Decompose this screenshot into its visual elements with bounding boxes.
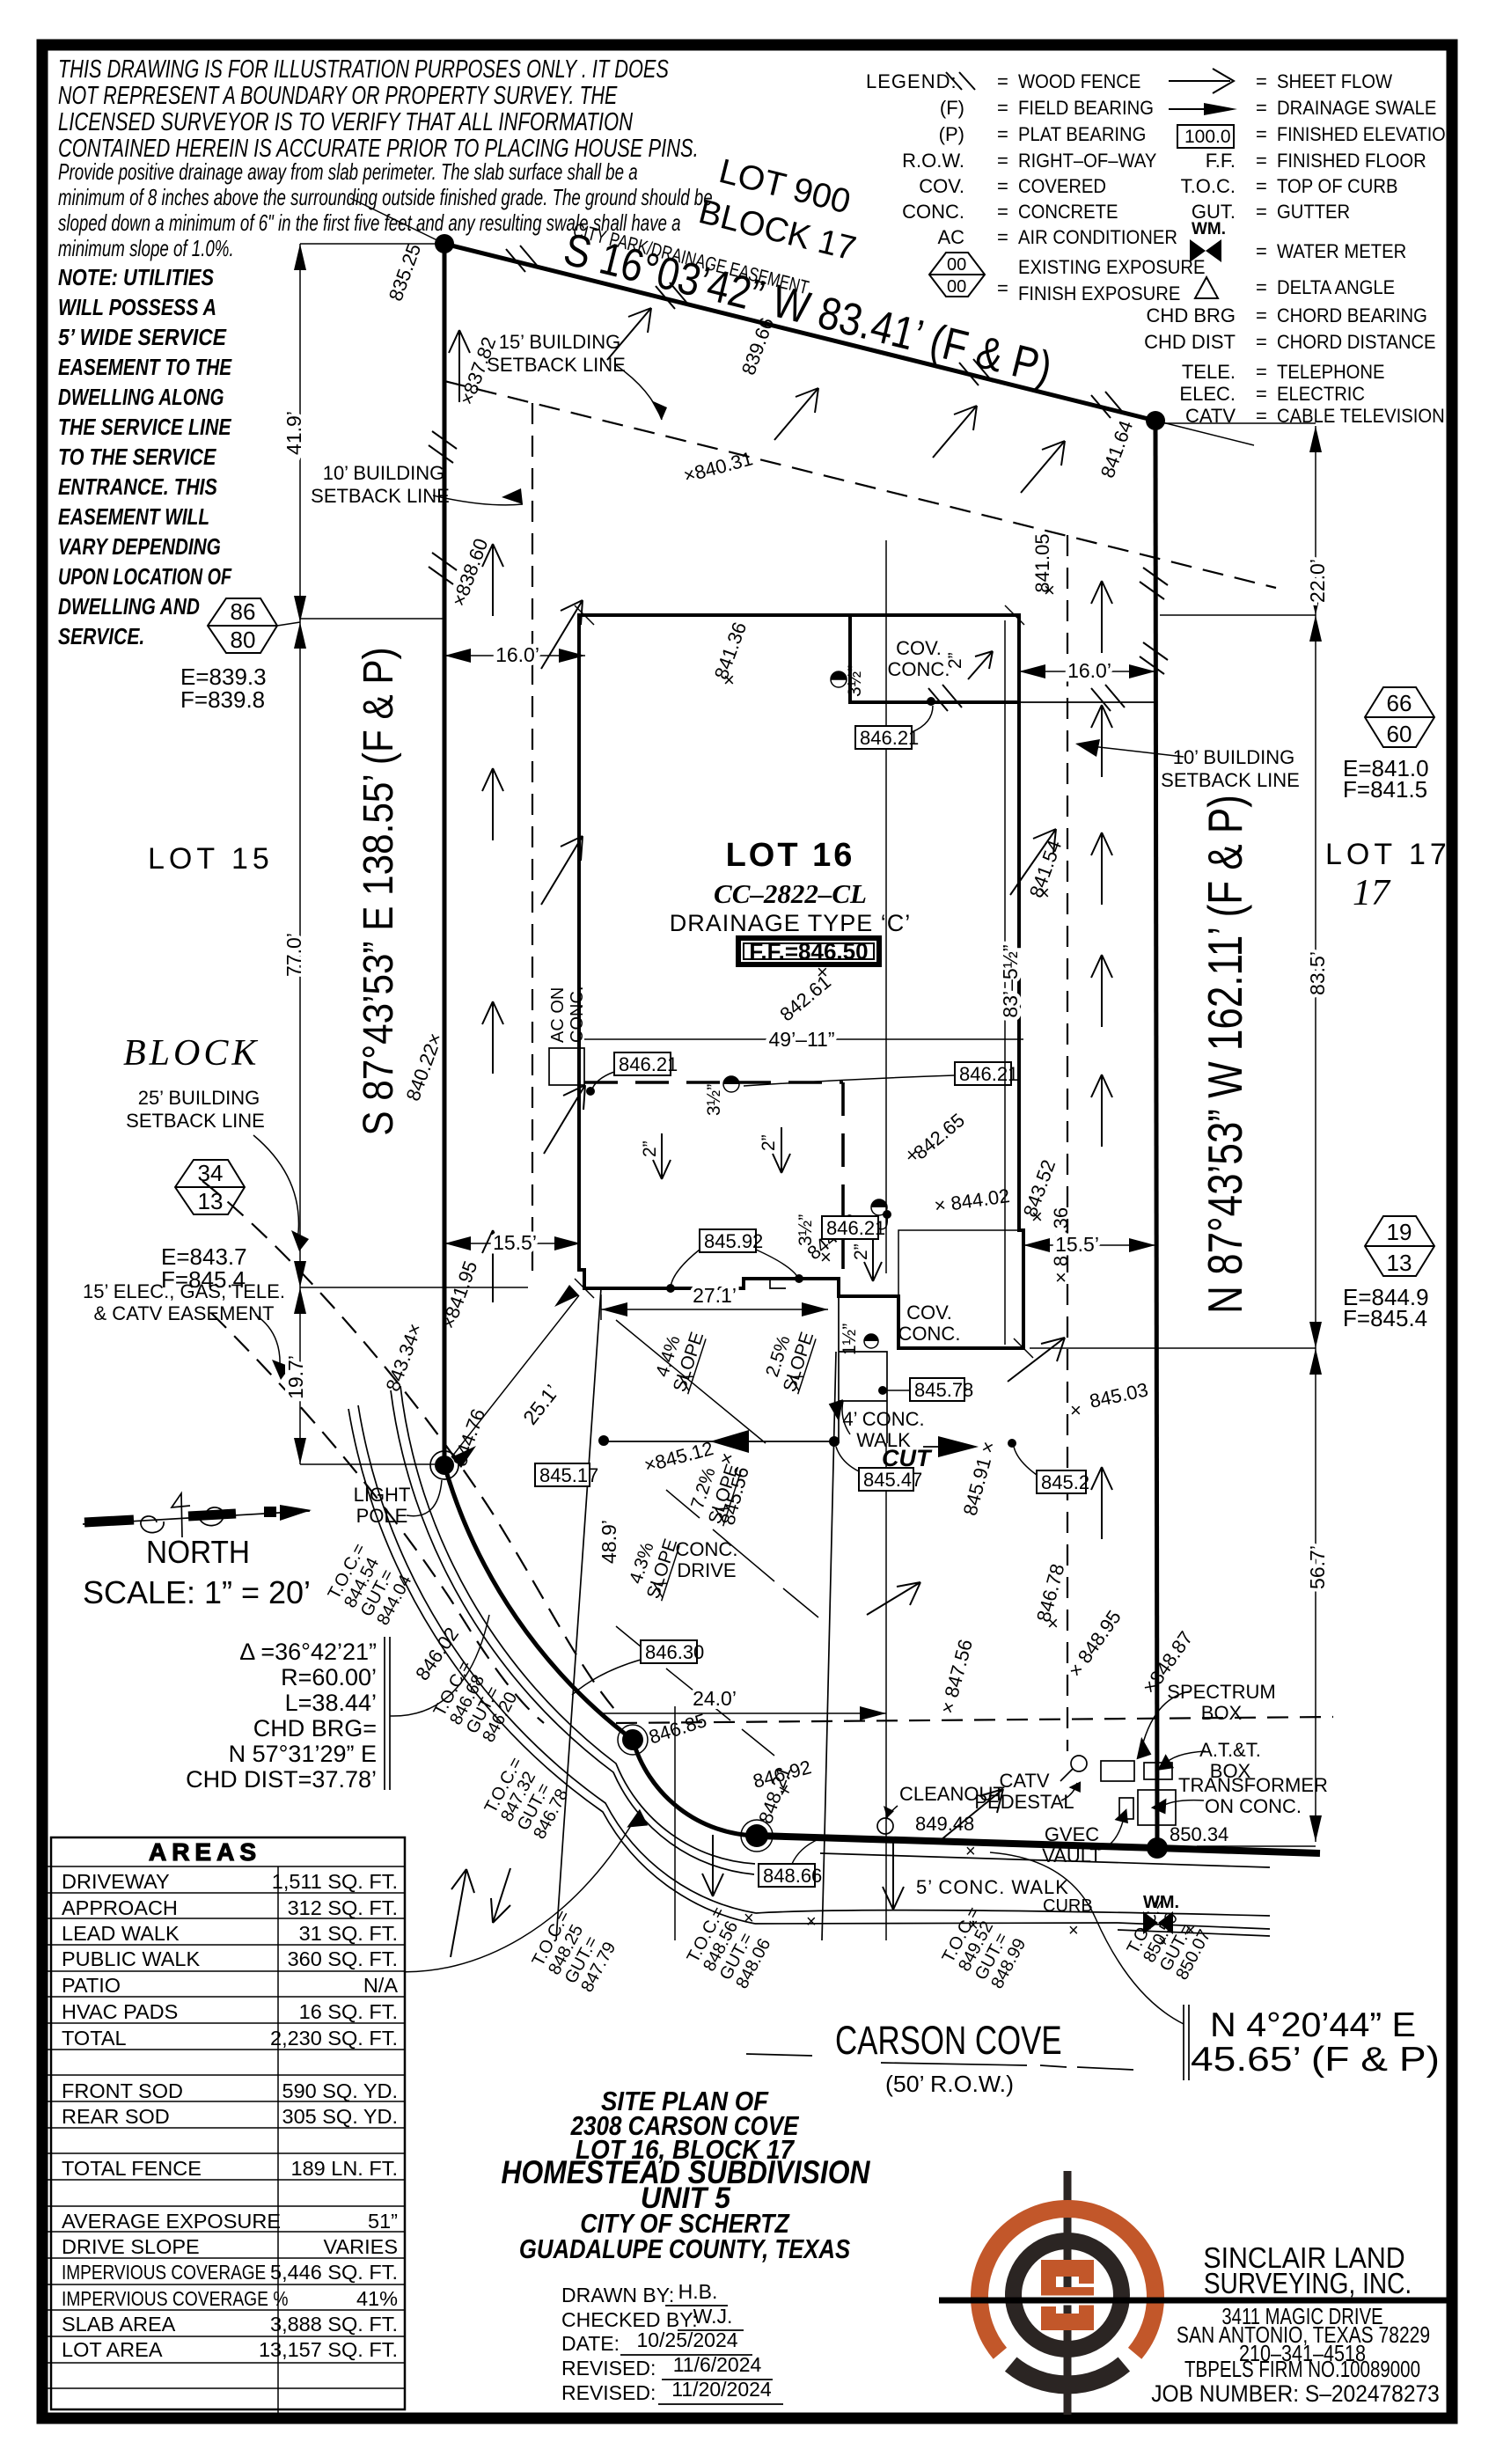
svg-text:N 57°31’29” E: N 57°31’29” E [229,1741,377,1767]
svg-text:CHD BRG: CHD BRG [1147,304,1236,326]
svg-text:×: × [1031,1206,1043,1228]
svg-text:WILL POSSESS A: WILL POSSESS A [58,295,216,321]
svg-text:19: 19 [1387,1219,1412,1245]
svg-text:845.92: 845.92 [704,1230,763,1252]
svg-text:845.78: 845.78 [914,1379,973,1401]
svg-text:SPECTRUM: SPECTRUM [1167,1681,1275,1703]
svg-text:850.34: 850.34 [1170,1823,1228,1845]
svg-text:CHORD DISTANCE: CHORD DISTANCE [1277,332,1436,353]
svg-text:849.48: 849.48 [915,1813,974,1835]
svg-text:TRANSFORMER: TRANSFORMER [1178,1774,1328,1796]
svg-text:=: = [1256,304,1267,326]
svg-text:BLOCK: BLOCK [123,1033,260,1074]
svg-text:49’–11”: 49’–11” [768,1028,834,1051]
svg-text:WALK: WALK [856,1429,911,1451]
svg-text:11/20/2024: 11/20/2024 [671,2378,772,2401]
svg-text:JOB NUMBER: S–202478273: JOB NUMBER: S–202478273 [1151,2381,1440,2407]
svg-text:=: = [997,97,1008,119]
svg-text:TO THE SERVICE: TO THE SERVICE [58,444,216,470]
svg-text:DRIVE: DRIVE [677,1559,736,1581]
svg-text:=: = [1256,97,1267,119]
svg-text:2”: 2” [945,652,965,669]
svg-text:=: = [997,150,1008,172]
svg-text:=: = [1256,70,1267,92]
svg-text:DELTA ANGLE: DELTA ANGLE [1277,277,1395,298]
svg-text:3,888 SQ. FT.: 3,888 SQ. FT. [270,2313,398,2336]
svg-text:TBPELS FIRM NO.10089000: TBPELS FIRM NO.10089000 [1184,2357,1420,2382]
svg-text:Δ =36°42’21”: Δ =36°42’21” [239,1639,377,1665]
svg-text:×: × [1038,882,1050,904]
svg-text:VARY DEPENDING: VARY DEPENDING [58,534,221,560]
svg-text:FIELD BEARING: FIELD BEARING [1018,98,1154,119]
svg-text:845.47: 845.47 [863,1469,922,1491]
svg-text:THE SERVICE LINE: THE SERVICE LINE [58,414,232,441]
svg-text:T.O.C.: T.O.C. [1181,175,1236,197]
svg-text:LEGEND:: LEGEND: [866,70,957,92]
svg-text:=: = [1256,331,1267,353]
svg-text:PLAT BEARING: PLAT BEARING [1018,124,1146,145]
svg-text:CONC.: CONC. [676,1538,738,1560]
svg-text:DRAINAGE TYPE ‘C’: DRAINAGE TYPE ‘C’ [670,910,912,936]
svg-text:TOTAL: TOTAL [62,2027,127,2050]
svg-text:(F): (F) [940,97,964,119]
svg-text:×: × [1070,1399,1082,1421]
svg-text:COV.: COV. [906,1302,952,1324]
svg-text:=: = [997,226,1008,248]
svg-text:PEDESTAL: PEDESTAL [974,1791,1074,1813]
svg-text:×: × [820,1246,832,1268]
svg-text:2”: 2” [759,1134,779,1151]
svg-text:L=38.44’: L=38.44’ [285,1690,377,1716]
svg-text:48.9’: 48.9’ [598,1520,620,1564]
svg-text:FINISH EXPOSURE: FINISH EXPOSURE [1018,283,1180,304]
svg-text:15.5’: 15.5’ [493,1231,537,1254]
svg-text:SURVEYING, INC.: SURVEYING, INC. [1204,2268,1412,2300]
svg-text:=: = [997,70,1008,92]
svg-text:360 SQ. FT.: 360 SQ. FT. [288,1947,398,1970]
svg-text:COVERED: COVERED [1018,176,1106,197]
svg-text:LOT 17: LOT 17 [1325,838,1451,871]
svg-text:1½”: 1½” [840,1324,860,1355]
svg-text:UPON LOCATION OF: UPON LOCATION OF [58,563,232,589]
svg-text:590 SQ. YD.: 590 SQ. YD. [282,2079,399,2102]
svg-text:DRIVEWAY: DRIVEWAY [62,1870,170,1893]
svg-text:4’ CONC.: 4’ CONC. [842,1408,924,1430]
svg-text:×: × [723,669,735,691]
svg-text:100.0: 100.0 [1184,127,1231,147]
svg-text:845.17: 845.17 [539,1464,598,1486]
svg-text:15.5’: 15.5’ [1055,1233,1099,1256]
svg-text:F=845.4: F=845.4 [161,1266,246,1293]
svg-text:=: = [1256,201,1267,223]
svg-text:3½”: 3½” [845,665,865,697]
svg-text:ENTRANCE. THIS: ENTRANCE. THIS [58,474,217,500]
svg-text:5’ WIDE SERVICE: 5’ WIDE SERVICE [58,326,227,351]
svg-text:F=839.8: F=839.8 [180,686,265,713]
svg-text:IMPERVIOUS COVERAGE %: IMPERVIOUS COVERAGE % [62,2287,288,2310]
svg-text:W.J.: W.J. [693,2305,733,2328]
svg-text:F=841.5: F=841.5 [1343,776,1427,803]
svg-text:CONC.: CONC. [898,1323,961,1345]
svg-text:EASEMENT WILL: EASEMENT WILL [58,504,209,530]
svg-text:80: 80 [231,627,256,653]
svg-text:TOTAL FENCE: TOTAL FENCE [62,2157,202,2180]
svg-text:TELE.: TELE. [1182,361,1236,383]
svg-text:PATIO: PATIO [62,1974,121,1997]
svg-text:CC–2822–CL: CC–2822–CL [714,878,867,909]
svg-text:N 87°43’53” W 162.11’ (F & P): N 87°43’53” W 162.11’ (F & P) [1198,795,1252,1314]
svg-text:17: 17 [1353,873,1391,913]
svg-text:minimum slope of 1.0%.: minimum slope of 1.0%. [58,235,234,261]
svg-text:66: 66 [1387,690,1412,716]
svg-text:AC ON: AC ON [548,987,568,1043]
svg-text:TELEPHONE: TELEPHONE [1277,362,1385,383]
svg-text:LEAD WALK: LEAD WALK [62,1922,180,1945]
svg-text:AREAS: AREAS [149,1838,261,1866]
svg-text:POLE: POLE [356,1505,408,1527]
svg-text:FINISHED ELEVATION: FINISHED ELEVATION [1277,124,1458,145]
svg-text:F=845.4: F=845.4 [1343,1305,1427,1331]
svg-text:11/6/2024: 11/6/2024 [673,2353,762,2376]
svg-text:=: = [1256,383,1267,405]
svg-text:16 SQ. FT.: 16 SQ. FT. [299,2000,398,2023]
svg-text:19.7’: 19.7’ [284,1355,307,1399]
svg-text:ELECTRIC: ELECTRIC [1277,384,1365,405]
svg-text:LOT 15: LOT 15 [148,842,274,876]
svg-text:24.0’: 24.0’ [693,1687,737,1710]
svg-text:LOT 16: LOT 16 [726,837,855,874]
svg-text:83.5’: 83.5’ [1306,951,1329,995]
svg-text:846.30: 846.30 [645,1641,704,1663]
svg-text:LIGHT: LIGHT [354,1484,411,1506]
svg-text:5,446 SQ. FT.: 5,446 SQ. FT. [270,2261,398,2284]
svg-text:GUADALUPE COUNTY, TEXAS: GUADALUPE COUNTY, TEXAS [519,2234,850,2265]
svg-text:AC: AC [937,226,964,248]
svg-text:TOP OF CURB: TOP OF CURB [1277,176,1398,197]
svg-text:R.O.W.: R.O.W. [902,150,964,172]
svg-text:THIS DRAWING IS FOR ILLUSTRATI: THIS DRAWING IS FOR ILLUSTRATION PURPOSE… [58,55,669,84]
svg-text:SERVICE.: SERVICE. [58,625,144,650]
svg-text:60: 60 [1387,721,1412,747]
svg-text:846.21: 846.21 [619,1053,678,1075]
svg-text:N 4°20’44” E: N 4°20’44” E [1210,2006,1416,2044]
svg-text:VARIES: VARIES [324,2235,398,2258]
svg-text:ELEC.: ELEC. [1179,383,1236,405]
svg-text:10/25/2024: 10/25/2024 [636,2328,737,2351]
svg-text:R=60.00’: R=60.00’ [281,1664,377,1690]
svg-text:CHD BRG=: CHD BRG= [253,1715,377,1742]
svg-text:2”: 2” [851,1243,871,1260]
svg-text:WATER METER: WATER METER [1277,241,1406,262]
svg-text:27.1’: 27.1’ [693,1284,737,1307]
svg-text:SLAB AREA: SLAB AREA [62,2313,176,2336]
svg-text:=: = [1256,175,1267,197]
svg-text:REVISED:: REVISED: [561,2381,656,2404]
svg-text:34: 34 [198,1160,224,1186]
svg-text:AIR CONDITIONER: AIR CONDITIONER [1018,227,1177,248]
svg-text:845.2: 845.2 [1041,1471,1089,1493]
svg-text:=: = [997,201,1008,223]
svg-text:×: × [744,1909,754,1928]
svg-text:REVISED:: REVISED: [561,2357,656,2380]
svg-text:15’ BUILDINGSETBACK LINE: 15’ BUILDINGSETBACK LINE [487,331,626,376]
svg-text:(P): (P) [939,123,964,145]
svg-text:=: = [997,123,1008,145]
svg-text:312 SQ. FT.: 312 SQ. FT. [288,1896,398,1919]
svg-text:FRONT SOD: FRONT SOD [62,2079,183,2102]
svg-text:45.65’ (F & P): 45.65’ (F & P) [1191,2041,1440,2079]
svg-text:DATE:: DATE: [561,2332,620,2355]
svg-text:846.21: 846.21 [959,1063,1018,1085]
svg-text:1,511 SQ. FT.: 1,511 SQ. FT. [272,1870,398,1893]
svg-text:(50’ R.O.W.): (50’ R.O.W.) [885,2071,1014,2097]
svg-text:DRAWN BY:: DRAWN BY: [561,2284,674,2306]
svg-text:00: 00 [947,277,966,297]
svg-text:16.0’: 16.0’ [1067,659,1111,682]
svg-text:83’–5½”: 83’–5½” [999,944,1022,1017]
svg-text:CHD DIST: CHD DIST [1144,331,1236,353]
svg-text:=: = [1256,150,1267,172]
svg-text:ON CONC.: ON CONC. [1205,1795,1302,1817]
svg-text:NOTE: UTILITIES: NOTE: UTILITIES [58,265,214,290]
svg-text:51”: 51” [368,2210,398,2233]
svg-text:SHEET FLOW: SHEET FLOW [1277,71,1392,92]
svg-text:WOOD FENCE: WOOD FENCE [1018,71,1140,92]
svg-text:×: × [906,1144,918,1166]
svg-text:3½”: 3½” [704,1084,724,1116]
svg-text:CONC.: CONC. [888,658,950,680]
svg-text:PUBLIC WALK: PUBLIC WALK [62,1947,200,1970]
svg-text:H.B.: H.B. [678,2280,718,2303]
svg-text:13: 13 [198,1188,224,1214]
svg-text:CONC.: CONC. [902,201,964,223]
svg-text:GUTTER: GUTTER [1277,202,1350,223]
svg-text:10’ BUILDINGSETBACK LINE: 10’ BUILDINGSETBACK LINE [311,462,450,507]
svg-text:31 SQ. FT.: 31 SQ. FT. [299,1922,398,1945]
svg-text:=: = [997,277,1008,299]
svg-text:SCALE: 1” = 20’: SCALE: 1” = 20’ [83,1574,311,1610]
svg-text:189 LN. FT.: 189 LN. FT. [291,2157,398,2180]
svg-text:846.21: 846.21 [826,1217,885,1239]
svg-text:×: × [806,1912,817,1932]
svg-text:WM.: WM. [1192,220,1226,238]
svg-text:EASEMENT TO THE: EASEMENT TO THE [58,355,232,380]
svg-text:CHD DIST=37.78’: CHD DIST=37.78’ [186,1766,377,1793]
svg-text:AVERAGE EXPOSURE: AVERAGE EXPOSURE [62,2210,281,2233]
svg-text:=: = [1256,240,1267,262]
svg-text:×: × [817,961,828,983]
svg-text:=: = [1256,276,1267,298]
svg-text:N/A: N/A [363,1974,399,1997]
svg-text:×: × [965,1842,976,1861]
svg-text:86: 86 [231,598,256,625]
svg-text:=: = [1256,361,1267,383]
svg-text:RIGHT–OF–WAY: RIGHT–OF–WAY [1018,150,1156,172]
svg-text:CONC.: CONC. [568,986,587,1043]
svg-text:2,230 SQ. FT.: 2,230 SQ. FT. [270,2027,398,2050]
svg-text:NOT REPRESENT A BOUNDARY OR PR: NOT REPRESENT A BOUNDARY OR PROPERTY SUR… [58,82,618,110]
svg-text:00: 00 [947,255,966,275]
svg-text:COV.: COV. [896,637,942,659]
svg-text:LOT AREA: LOT AREA [62,2338,163,2361]
svg-text:16.0’: 16.0’ [495,643,539,666]
svg-text:GVEC: GVEC [1045,1823,1099,1845]
svg-text:846.21: 846.21 [860,727,919,749]
svg-text:305 SQ. YD.: 305 SQ. YD. [282,2105,399,2128]
svg-text:REAR SOD: REAR SOD [62,2105,170,2128]
svg-text:NORTH: NORTH [146,1534,250,1570]
svg-text:Provide positive drainage away: Provide positive drainage away from slab… [58,158,638,185]
svg-text:minimum of 8 inches above the: minimum of 8 inches above the surroundin… [58,184,713,210]
svg-text:DWELLING AND: DWELLING AND [58,594,200,620]
svg-text:41%: 41% [356,2287,398,2310]
svg-text:DRAINAGE SWALE: DRAINAGE SWALE [1277,98,1436,119]
svg-text:EXISTING EXPOSURE: EXISTING EXPOSURE [1018,257,1205,278]
svg-text:A.T.&T.: A.T.&T. [1199,1739,1261,1761]
svg-text:5’ CONC. WALK: 5’ CONC. WALK [916,1876,1069,1898]
svg-text:APPROACH: APPROACH [62,1896,178,1919]
svg-text:13: 13 [1387,1250,1412,1276]
svg-text:BOX: BOX [1201,1702,1243,1724]
svg-text:IMPERVIOUS COVERAGE: IMPERVIOUS COVERAGE [62,2261,266,2284]
svg-text:×: × [1068,1921,1079,1940]
svg-text:×: × [1047,1612,1059,1634]
svg-text:13,157 SQ. FT.: 13,157 SQ. FT. [259,2338,398,2361]
svg-text:COV.: COV. [919,175,964,197]
svg-text:41.9’: 41.9’ [282,411,305,455]
svg-text:56.7’: 56.7’ [1306,1545,1329,1589]
svg-text:VAULT: VAULT [1042,1844,1102,1866]
svg-text:22.0’: 22.0’ [1306,559,1329,603]
svg-text:HVAC PADS: HVAC PADS [62,2000,178,2023]
svg-text:F.F.: F.F. [1206,150,1236,172]
svg-text:=: = [1256,123,1267,145]
svg-text:CARSON COVE: CARSON COVE [835,2019,1062,2063]
svg-text:25’ BUILDINGSETBACK LINE: 25’ BUILDINGSETBACK LINE [126,1087,265,1132]
svg-text:10’ BUILDINGSETBACK LINE: 10’ BUILDINGSETBACK LINE [1161,746,1300,791]
svg-text:CHORD BEARING: CHORD BEARING [1277,305,1427,326]
svg-text:×: × [1044,579,1055,601]
svg-text:77.0’: 77.0’ [282,933,305,977]
svg-text:848.66: 848.66 [763,1865,822,1887]
svg-text:FINISHED FLOOR: FINISHED FLOOR [1277,150,1426,172]
svg-text:DWELLING ALONG: DWELLING ALONG [58,385,224,410]
svg-text:DRIVE SLOPE: DRIVE SLOPE [62,2235,200,2258]
svg-text:LICENSED SURVEYOR IS TO VERIFY: LICENSED SURVEYOR IS TO VERIFY THAT ALL … [58,108,633,136]
svg-text:F.F.=846.50: F.F.=846.50 [749,938,868,964]
svg-text:S 87°43’53” E 138.55’ (F & P): S 87°43’53” E 138.55’ (F & P) [354,647,401,1135]
svg-text:2”: 2” [640,1140,660,1157]
svg-text:=: = [997,175,1008,197]
svg-text:CONCRETE: CONCRETE [1018,202,1118,223]
svg-text:CATV: CATV [999,1770,1049,1792]
